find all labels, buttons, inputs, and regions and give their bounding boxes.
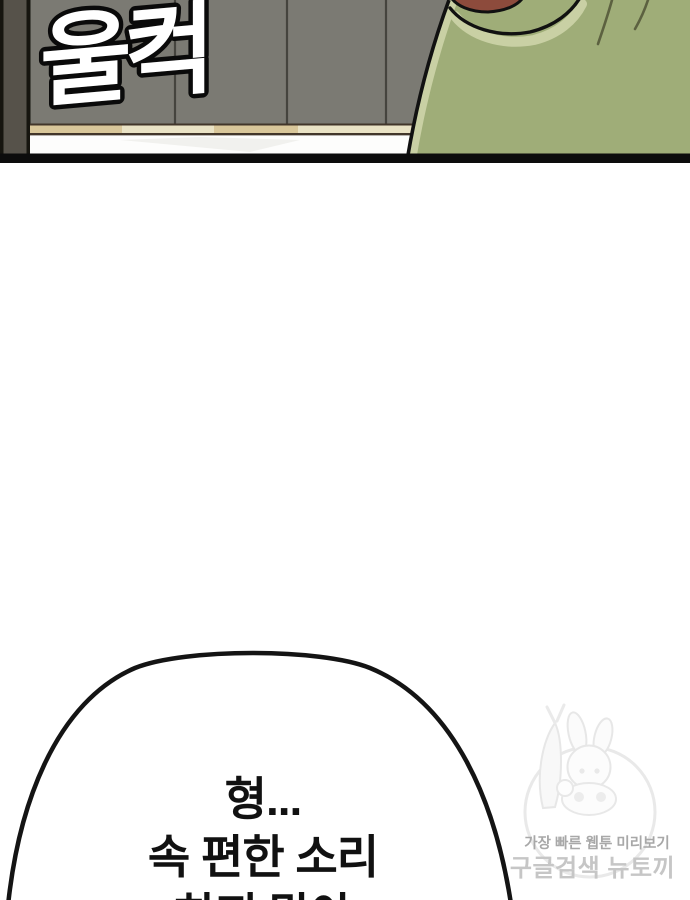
mascot-eye-left — [579, 768, 584, 773]
bubble-line-3: 하지 말아 — [38, 886, 488, 900]
bubble-line-1: 형... — [38, 770, 488, 828]
panel-bottom-bar — [0, 154, 690, 164]
character-shoulder — [408, 0, 690, 155]
bubble-line-2: 속 편한 소리 — [38, 828, 488, 886]
mascot-glove-right — [596, 792, 606, 802]
sfx-text: 울컥 — [40, 0, 207, 120]
comic-panel: 울컥 — [0, 0, 690, 163]
speech-bubble-text: 형... 속 편한 소리 하지 말아 — [38, 770, 488, 900]
door-frame-edge-inner — [27, 0, 31, 155]
small-bunny-icon — [557, 780, 573, 796]
mascot-eye-right — [594, 768, 599, 773]
baseboard-bottom-edge — [30, 133, 412, 135]
door-frame-left — [4, 0, 27, 155]
door-frame-edge-outer — [0, 0, 4, 155]
carrot-leaves-icon — [547, 705, 564, 723]
mascot-glove-left — [574, 792, 584, 802]
carrot-icon — [540, 723, 561, 808]
baseboard-segment-tan-1 — [30, 126, 122, 134]
baseboard-segment-tan-2 — [214, 126, 298, 134]
webtoon-page: 울컥 가장 빠른 웹툰 미리보기 구글검색 뉴토끼 형... 속 편한 소리 하… — [0, 0, 690, 900]
baseboard-top-edge — [30, 124, 412, 126]
